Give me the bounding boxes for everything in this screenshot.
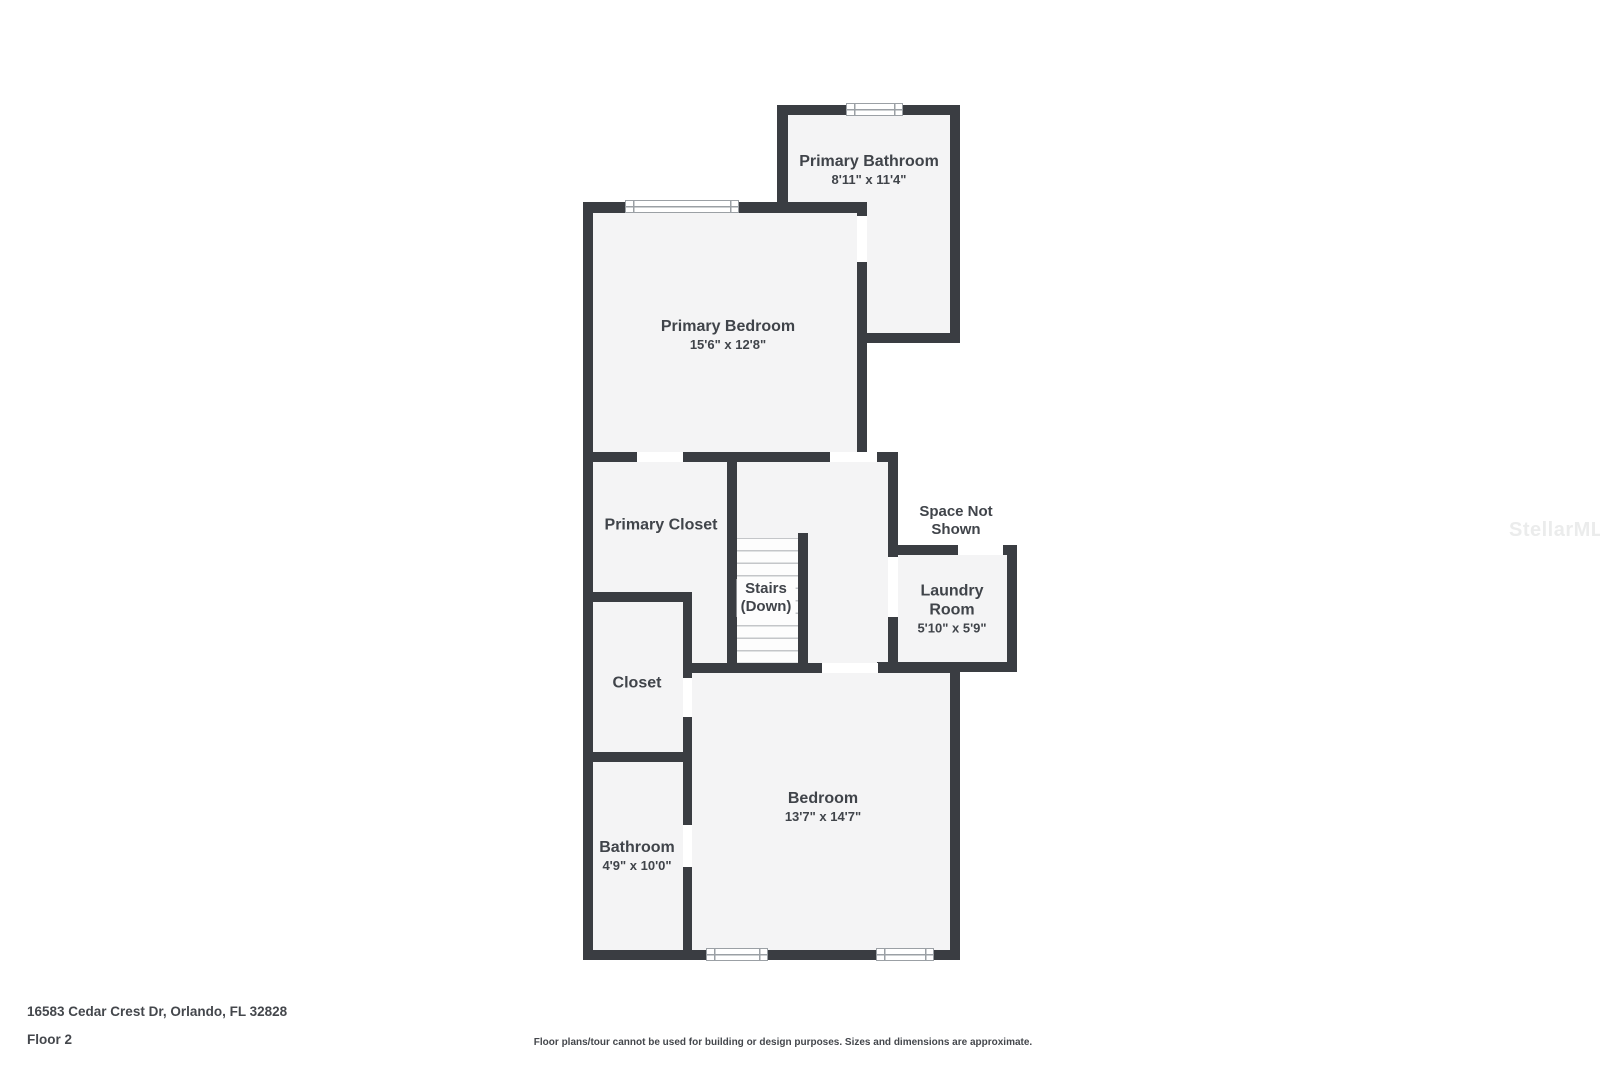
wall xyxy=(583,202,593,960)
watermark: StellarMLS xyxy=(1509,519,1600,542)
room-name: Primary Closet xyxy=(605,516,718,535)
wall xyxy=(1007,545,1017,672)
door-opening xyxy=(637,452,683,462)
wall xyxy=(777,105,788,213)
room-label-primary-bedroom: Primary Bedroom 15'6" x 12'8" xyxy=(661,317,795,353)
room-dims: 5'10" x 5'9" xyxy=(917,620,986,637)
room-name: Shown xyxy=(919,521,992,539)
address-text: 16583 Cedar Crest Dr, Orlando, FL 32828 xyxy=(27,1004,287,1019)
room-label-closet: Closet xyxy=(613,674,662,693)
wall xyxy=(950,105,960,343)
door-opening xyxy=(888,557,898,617)
wall xyxy=(727,452,737,663)
floor-plan-canvas: Primary Bathroom 8'11" x 11'4" Primary B… xyxy=(0,0,1600,1066)
door-opening xyxy=(830,452,877,462)
room-name: Bedroom xyxy=(785,789,861,808)
wall xyxy=(857,333,960,343)
door-opening xyxy=(958,545,1003,555)
room-label-bathroom: Bathroom 4'9" x 10'0" xyxy=(599,838,675,874)
wall xyxy=(583,592,692,602)
room-name: Primary Bedroom xyxy=(661,317,795,336)
door-opening xyxy=(857,216,867,262)
room-dims: 4'9" x 10'0" xyxy=(599,857,675,874)
window-symbol xyxy=(625,200,739,213)
window-symbol xyxy=(876,948,934,961)
room-label-space-not-shown: Space Not Shown xyxy=(919,503,992,539)
room-dims: 13'7" x 14'7" xyxy=(785,808,861,825)
room-label-bedroom: Bedroom 13'7" x 14'7" xyxy=(785,789,861,825)
disclaimer-text: Floor plans/tour cannot be used for buil… xyxy=(534,1037,1032,1048)
door-opening xyxy=(683,825,692,867)
room-dims: 15'6" x 12'8" xyxy=(661,336,795,353)
room-label-laundry-room: Laundry Room 5'10" x 5'9" xyxy=(917,582,986,637)
wall xyxy=(798,533,808,673)
room-label-primary-closet: Primary Closet xyxy=(605,516,718,535)
room-label-primary-bathroom: Primary Bathroom 8'11" x 11'4" xyxy=(799,152,939,188)
room-dims: 8'11" x 11'4" xyxy=(799,171,939,188)
door-opening xyxy=(822,663,878,673)
wall xyxy=(583,752,692,762)
room-name: Room xyxy=(917,601,986,620)
room-label-stairs: Stairs (Down) xyxy=(737,579,796,617)
door-opening xyxy=(683,678,692,717)
room-name: Stairs xyxy=(741,580,792,598)
floor-label: Floor 2 xyxy=(27,1032,72,1047)
stairs-direction: (Down) xyxy=(741,598,792,616)
room-name: Primary Bathroom xyxy=(799,152,939,171)
wall xyxy=(683,592,692,960)
room-name: Bathroom xyxy=(599,838,675,857)
window-symbol xyxy=(846,103,903,116)
room-name: Space Not xyxy=(919,503,992,521)
room-name: Laundry xyxy=(917,582,986,601)
room-name: Closet xyxy=(613,674,662,693)
window-symbol xyxy=(706,948,768,961)
wall xyxy=(950,663,960,960)
wall xyxy=(877,662,1017,672)
